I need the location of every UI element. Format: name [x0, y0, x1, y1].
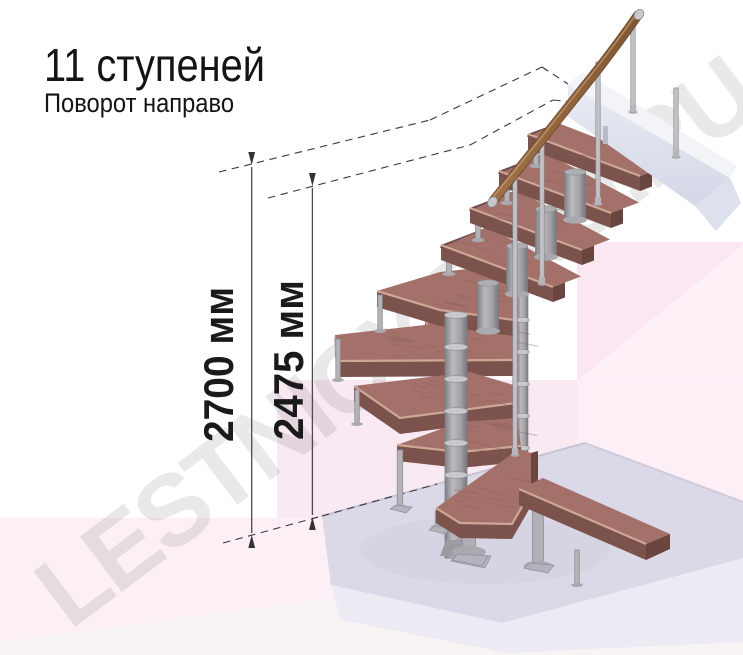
svg-text:Поворот направо: Поворот направо: [44, 88, 234, 118]
svg-text:2700 мм: 2700 мм: [195, 287, 242, 442]
svg-text:11 ступеней: 11 ступеней: [44, 39, 265, 91]
svg-text:2475 мм: 2475 мм: [265, 280, 312, 440]
